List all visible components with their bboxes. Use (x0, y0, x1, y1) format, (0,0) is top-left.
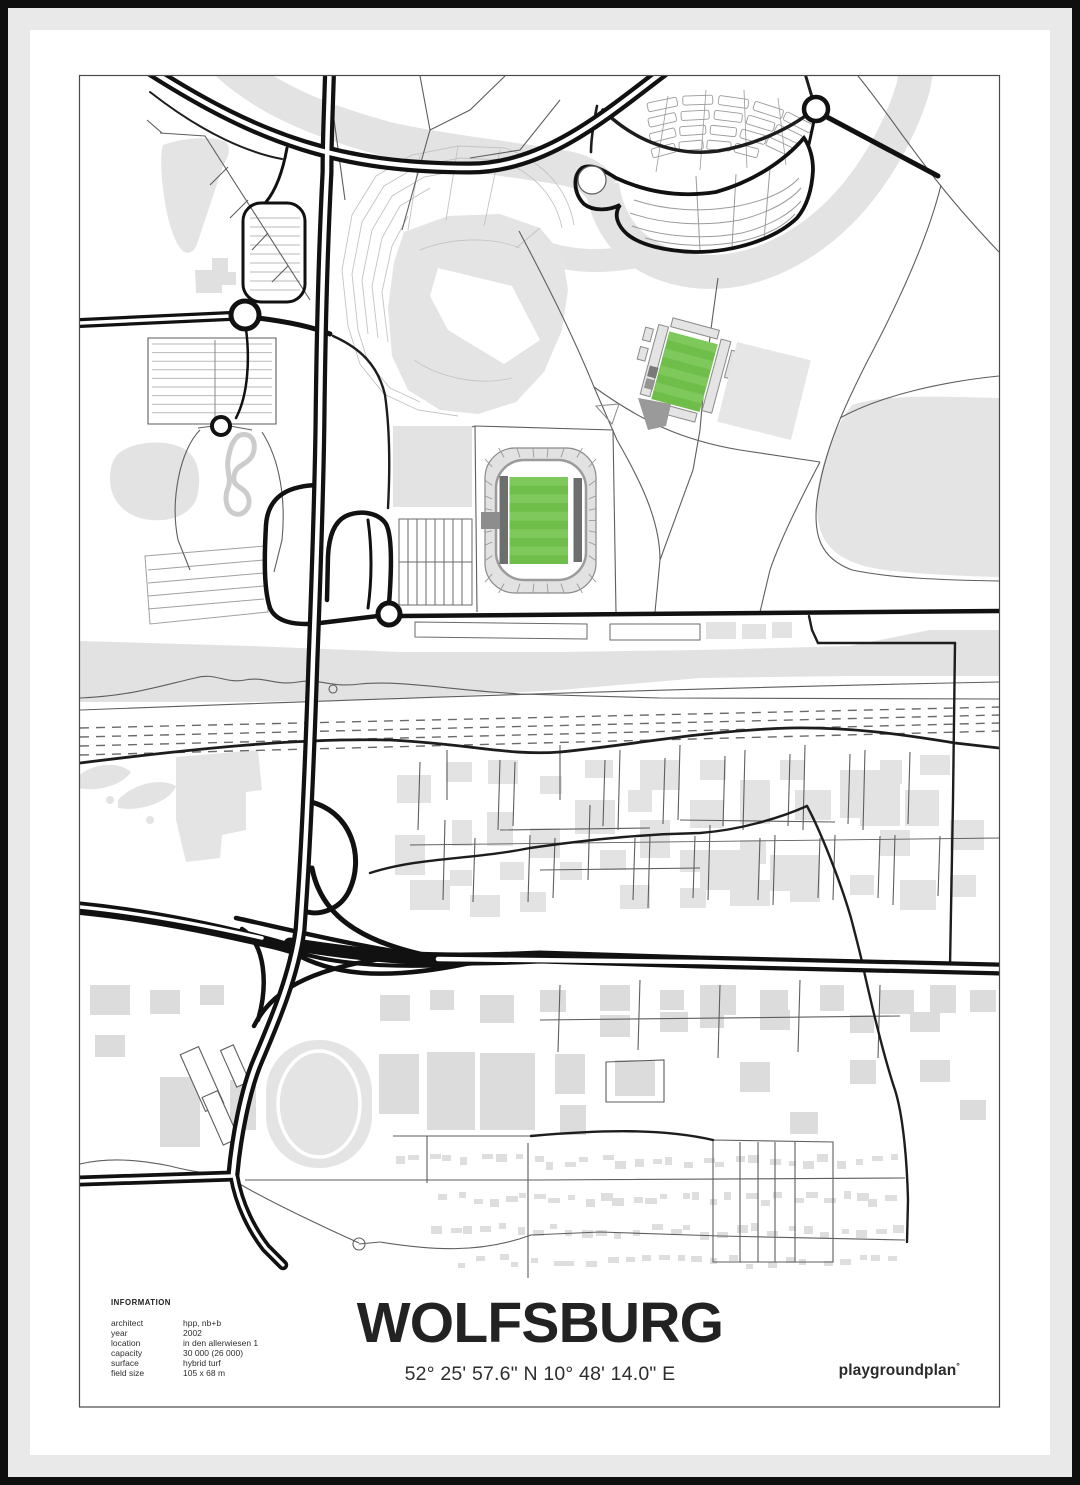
svg-text:year: year (111, 1328, 128, 1338)
svg-text:52° 25' 57.6" N 10° 48' 14.0": 52° 25' 57.6" N 10° 48' 14.0" E (405, 1363, 676, 1385)
svg-text:in den allerwiesen 1: in den allerwiesen 1 (183, 1338, 258, 1348)
svg-text:playgroundplan°: playgroundplan° (839, 1361, 961, 1379)
svg-text:INFORMATION: INFORMATION (111, 1298, 171, 1307)
svg-text:2002: 2002 (183, 1328, 202, 1338)
svg-text:30 000 (26 000): 30 000 (26 000) (183, 1348, 243, 1358)
svg-text:hpp, nb+b: hpp, nb+b (183, 1318, 221, 1328)
svg-text:105 x 68 m: 105 x 68 m (183, 1368, 225, 1378)
svg-text:location: location (111, 1338, 141, 1348)
svg-text:surface: surface (111, 1358, 139, 1368)
svg-text:hybrid turf: hybrid turf (183, 1358, 221, 1368)
svg-text:WOLFSBURG: WOLFSBURG (357, 1291, 723, 1355)
svg-text:field size: field size (111, 1368, 144, 1378)
svg-text:architect: architect (111, 1318, 144, 1328)
svg-text:capacity: capacity (111, 1348, 143, 1358)
